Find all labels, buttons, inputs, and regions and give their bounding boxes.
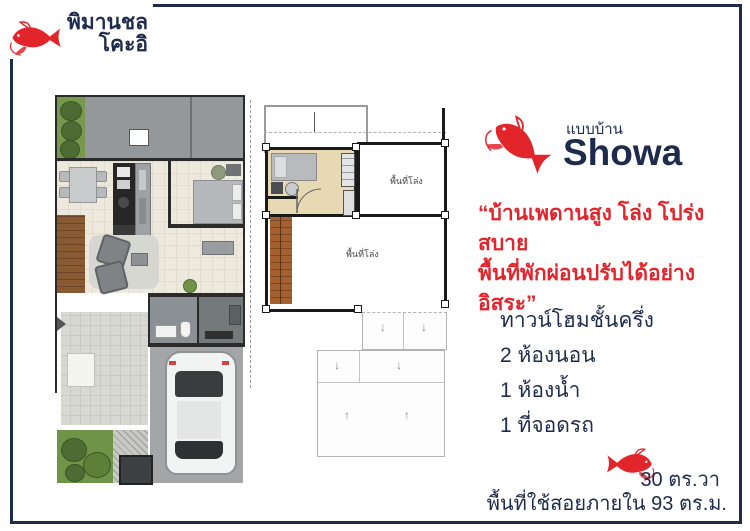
door-arc xyxy=(296,188,322,214)
wall-stub-topright xyxy=(442,108,445,142)
void-lower-wall-right xyxy=(444,217,447,305)
void-label-upper: พื้นที่โล่ง xyxy=(390,174,423,188)
kitchen-counter-2 xyxy=(135,163,151,241)
brand-logo: พิมานชล โคะอิ xyxy=(6,4,156,66)
spec-parking: 1 ที่จอดรถ xyxy=(500,408,654,443)
spec-type: ทาวน์โฮมชั้นครึ่ง xyxy=(500,303,654,338)
bathroom xyxy=(150,297,197,343)
bedroom-cabinet xyxy=(226,164,241,176)
roof-lower: ↓ ↓ ↑ ↑ xyxy=(317,350,445,457)
front-garden xyxy=(57,430,113,483)
dining-chair xyxy=(59,187,70,198)
dining-chair xyxy=(59,171,70,182)
void-lower-wall-bottom xyxy=(265,309,360,312)
vanity-dark xyxy=(271,182,283,194)
car xyxy=(165,351,237,475)
bed2 xyxy=(271,153,317,181)
plant xyxy=(183,279,197,293)
dining-table xyxy=(69,167,97,203)
bedroom-plant xyxy=(211,165,226,180)
usable-area: พื้นที่ใช้สอยภายใน 93 ตร.ม. xyxy=(467,487,727,519)
stairs2 xyxy=(270,217,292,304)
frame-bottom xyxy=(10,521,742,524)
balcony-tick xyxy=(314,112,315,132)
toilet xyxy=(180,321,191,338)
wall-kitchen-side xyxy=(168,161,171,228)
brochure-page: พิมานชล โคะอิ xyxy=(0,0,750,531)
sink xyxy=(155,325,177,338)
void-label-lower: พื้นที่โล่ง xyxy=(346,247,379,261)
brand-name-line1: พิมานชล xyxy=(58,12,148,34)
property-line xyxy=(250,100,251,388)
backyard-garden xyxy=(57,97,85,160)
planter-box xyxy=(119,455,153,485)
wall-porch-side xyxy=(148,297,150,343)
kitchen-counter xyxy=(113,163,135,225)
patio xyxy=(85,97,243,160)
side-table xyxy=(131,253,148,266)
spec-bathrooms: 1 ห้องน้ำ xyxy=(500,373,654,408)
quote-text: “บ้านเพดานสูง โล่ง โปร่งสบาย พื้นที่พักผ… xyxy=(478,199,750,319)
model-name: Showa xyxy=(563,132,682,174)
wood-deck-stairs xyxy=(57,215,85,293)
frame-top xyxy=(153,4,742,7)
void-room-upper: พื้นที่โล่ง xyxy=(357,142,447,217)
first-floor-plan xyxy=(55,95,245,483)
washing-machine xyxy=(129,129,149,146)
patio-divider xyxy=(190,97,192,160)
tv-cabinet xyxy=(202,241,234,255)
spec-list: ทาวน์โฮมชั้นครึ่ง 2 ห้องนอน 1 ห้องน้ำ 1 … xyxy=(500,303,654,443)
brand-name: พิมานชล โคะอิ xyxy=(58,12,148,56)
brand-name-line2: โคะอิ xyxy=(58,34,148,56)
wardrobe xyxy=(341,153,355,187)
dining-chair xyxy=(96,171,107,182)
frame-left xyxy=(10,59,13,521)
bedroom2 xyxy=(265,147,357,217)
wall-right xyxy=(243,95,245,345)
quote-line1: “บ้านเพดานสูง โล่ง โปร่งสบาย xyxy=(478,199,750,259)
balcony-dashed-line xyxy=(264,132,446,133)
koi-model-icon xyxy=(468,95,572,199)
void-lower-wall-left xyxy=(265,217,268,312)
entry-marker xyxy=(57,317,66,331)
roof-upper: ↓ ↓ xyxy=(362,312,447,350)
bed xyxy=(193,180,243,224)
door-mat xyxy=(67,353,95,387)
wall-top xyxy=(55,95,245,97)
wall-bedroom xyxy=(168,224,245,228)
second-floor-plan: พื้นที่โล่ง พื้นที่โล่ง ↓ ↓ ↓ ↓ xyxy=(258,100,463,470)
dining-chair xyxy=(96,187,107,198)
spec-bedrooms: 2 ห้องนอน xyxy=(500,338,654,373)
utility-room xyxy=(199,297,243,343)
